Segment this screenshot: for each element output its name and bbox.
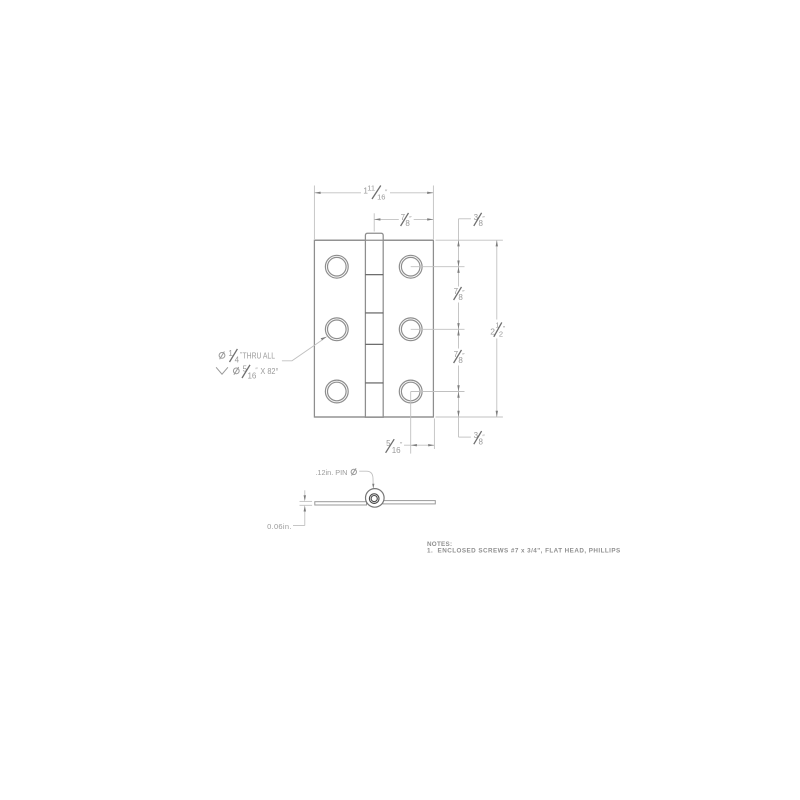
svg-text:1. ENCLOSED SCREWS #7 x 3/4",: 1. ENCLOSED SCREWS #7 x 3/4", FLAT HEAD,…	[427, 548, 621, 555]
svg-text:0.06in.: 0.06in.	[267, 522, 292, 531]
svg-text:11: 11	[367, 184, 375, 193]
svg-text:X 82°: X 82°	[260, 367, 278, 376]
svg-text:5: 5	[386, 439, 391, 448]
svg-text:THRU ALL: THRU ALL	[243, 351, 276, 360]
svg-text:.12in. PIN: .12in. PIN	[315, 468, 347, 477]
svg-text:4: 4	[235, 355, 240, 364]
